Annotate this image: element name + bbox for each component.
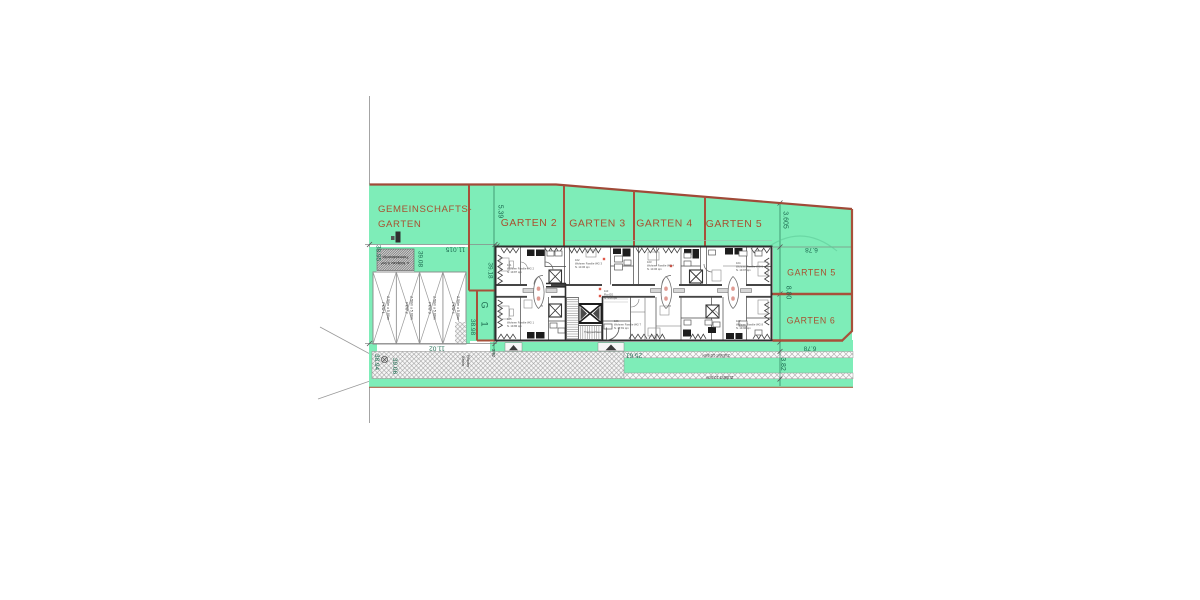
svg-text:Wohnen Familie WG 7: Wohnen Familie WG 7: [614, 323, 641, 327]
svg-text:6.78: 6.78: [805, 246, 818, 253]
svg-text:Wohnen Familie WG 2: Wohnen Familie WG 2: [507, 267, 534, 271]
svg-text:104: 104: [736, 261, 741, 265]
svg-text:N. 19.96 qm: N. 19.96 qm: [736, 326, 751, 330]
svg-text:2,50m x 5,00m: 2,50m x 5,00m: [456, 296, 460, 320]
svg-text:25.61: 25.61: [625, 351, 642, 358]
svg-text:3.82: 3.82: [779, 357, 786, 371]
svg-text:GEMEINSCHAFTS-: GEMEINSCHAFTS-: [378, 204, 472, 215]
svg-text:1: 1: [480, 321, 490, 326]
svg-text:39.18: 39.18: [487, 262, 494, 279]
svg-text:N. 13.06 qm: N. 13.06 qm: [575, 265, 590, 269]
svg-text:Wohnen Familie WG 4: Wohnen Familie WG 4: [647, 264, 674, 268]
svg-text:Wohnen Familie WG 3: Wohnen Familie WG 3: [575, 262, 602, 266]
svg-text:N. 17.81 qm: N. 17.81 qm: [614, 326, 629, 330]
svg-text:103: 103: [647, 260, 652, 264]
svg-text:Pflaster: Pflaster: [466, 355, 470, 369]
svg-text:Flur EG: Flur EG: [604, 293, 613, 297]
svg-text:u. Müllplatz 9,9m²: u. Müllplatz 9,9m²: [380, 261, 409, 265]
svg-text:PKW 4: PKW 4: [451, 302, 455, 313]
svg-text:GARTEN 3: GARTEN 3: [569, 219, 626, 230]
svg-text:11.02: 11.02: [429, 345, 445, 352]
svg-text:110: 110: [604, 289, 609, 293]
svg-text:102: 102: [575, 258, 580, 262]
svg-text:G: G: [480, 301, 490, 308]
svg-text:38.95: 38.95: [375, 245, 382, 262]
svg-text:38.98: 38.98: [469, 319, 476, 336]
svg-text:Wohnen Familie WG 1: Wohnen Familie WG 1: [507, 321, 534, 325]
svg-text:3.605: 3.605: [782, 211, 789, 229]
svg-text:106: 106: [614, 319, 619, 323]
svg-text:Treppenhaus: Treppenhaus: [584, 330, 602, 334]
svg-text:N. 19.87 qm: N. 19.87 qm: [507, 270, 522, 274]
svg-text:39.06: 39.06: [391, 358, 398, 375]
svg-text:5.39: 5.39: [497, 205, 504, 219]
svg-text:6.78: 6.78: [803, 345, 816, 352]
svg-text:N. 13.06 qm: N. 13.06 qm: [647, 267, 662, 271]
svg-text:PKW 2: PKW 2: [404, 302, 408, 313]
svg-text:Zufahrt 10,5m²: Zufahrt 10,5m²: [702, 353, 730, 358]
svg-text:107: 107: [736, 319, 741, 323]
svg-text:8.80: 8.80: [785, 286, 792, 300]
svg-text:Zufahrt 10,5m²: Zufahrt 10,5m²: [705, 375, 733, 380]
svg-text:Wohnen Familie WG 8: Wohnen Familie WG 8: [736, 323, 763, 327]
svg-text:38.94: 38.94: [373, 354, 380, 371]
svg-text:N. 19.86 qm: N. 19.86 qm: [507, 324, 522, 328]
svg-text:39.08: 39.08: [417, 251, 424, 268]
svg-text:2,50m x 5,00m: 2,50m x 5,00m: [433, 296, 437, 320]
svg-text:PKW 3: PKW 3: [428, 302, 432, 313]
svg-text:2,50m x 5,00m: 2,50m x 5,00m: [386, 296, 390, 320]
svg-text:GARTEN 5: GARTEN 5: [706, 219, 763, 230]
svg-text:Beton: Beton: [461, 356, 465, 366]
svg-text:3.92: 3.92: [491, 349, 496, 358]
svg-text:GARTEN 6: GARTEN 6: [787, 316, 836, 326]
svg-text:11.015: 11.015: [445, 246, 465, 253]
svg-text:GARTEN: GARTEN: [378, 219, 421, 230]
svg-text:N. 19.97 qm: N. 19.97 qm: [736, 268, 751, 272]
svg-text:Fahrradabstellpl.: Fahrradabstellpl.: [382, 255, 409, 259]
svg-text:PKW 1: PKW 1: [381, 302, 385, 313]
svg-text:Wohnen Familie WG 5: Wohnen Familie WG 5: [736, 265, 763, 269]
svg-text:GARTEN 5: GARTEN 5: [787, 268, 836, 278]
svg-text:N. 9.06 qm: N. 9.06 qm: [604, 296, 618, 300]
svg-text:GARTEN 4: GARTEN 4: [636, 219, 693, 230]
svg-text:GARTEN 2: GARTEN 2: [501, 218, 558, 229]
svg-text:2,50m x 5,00m: 2,50m x 5,00m: [409, 296, 413, 320]
